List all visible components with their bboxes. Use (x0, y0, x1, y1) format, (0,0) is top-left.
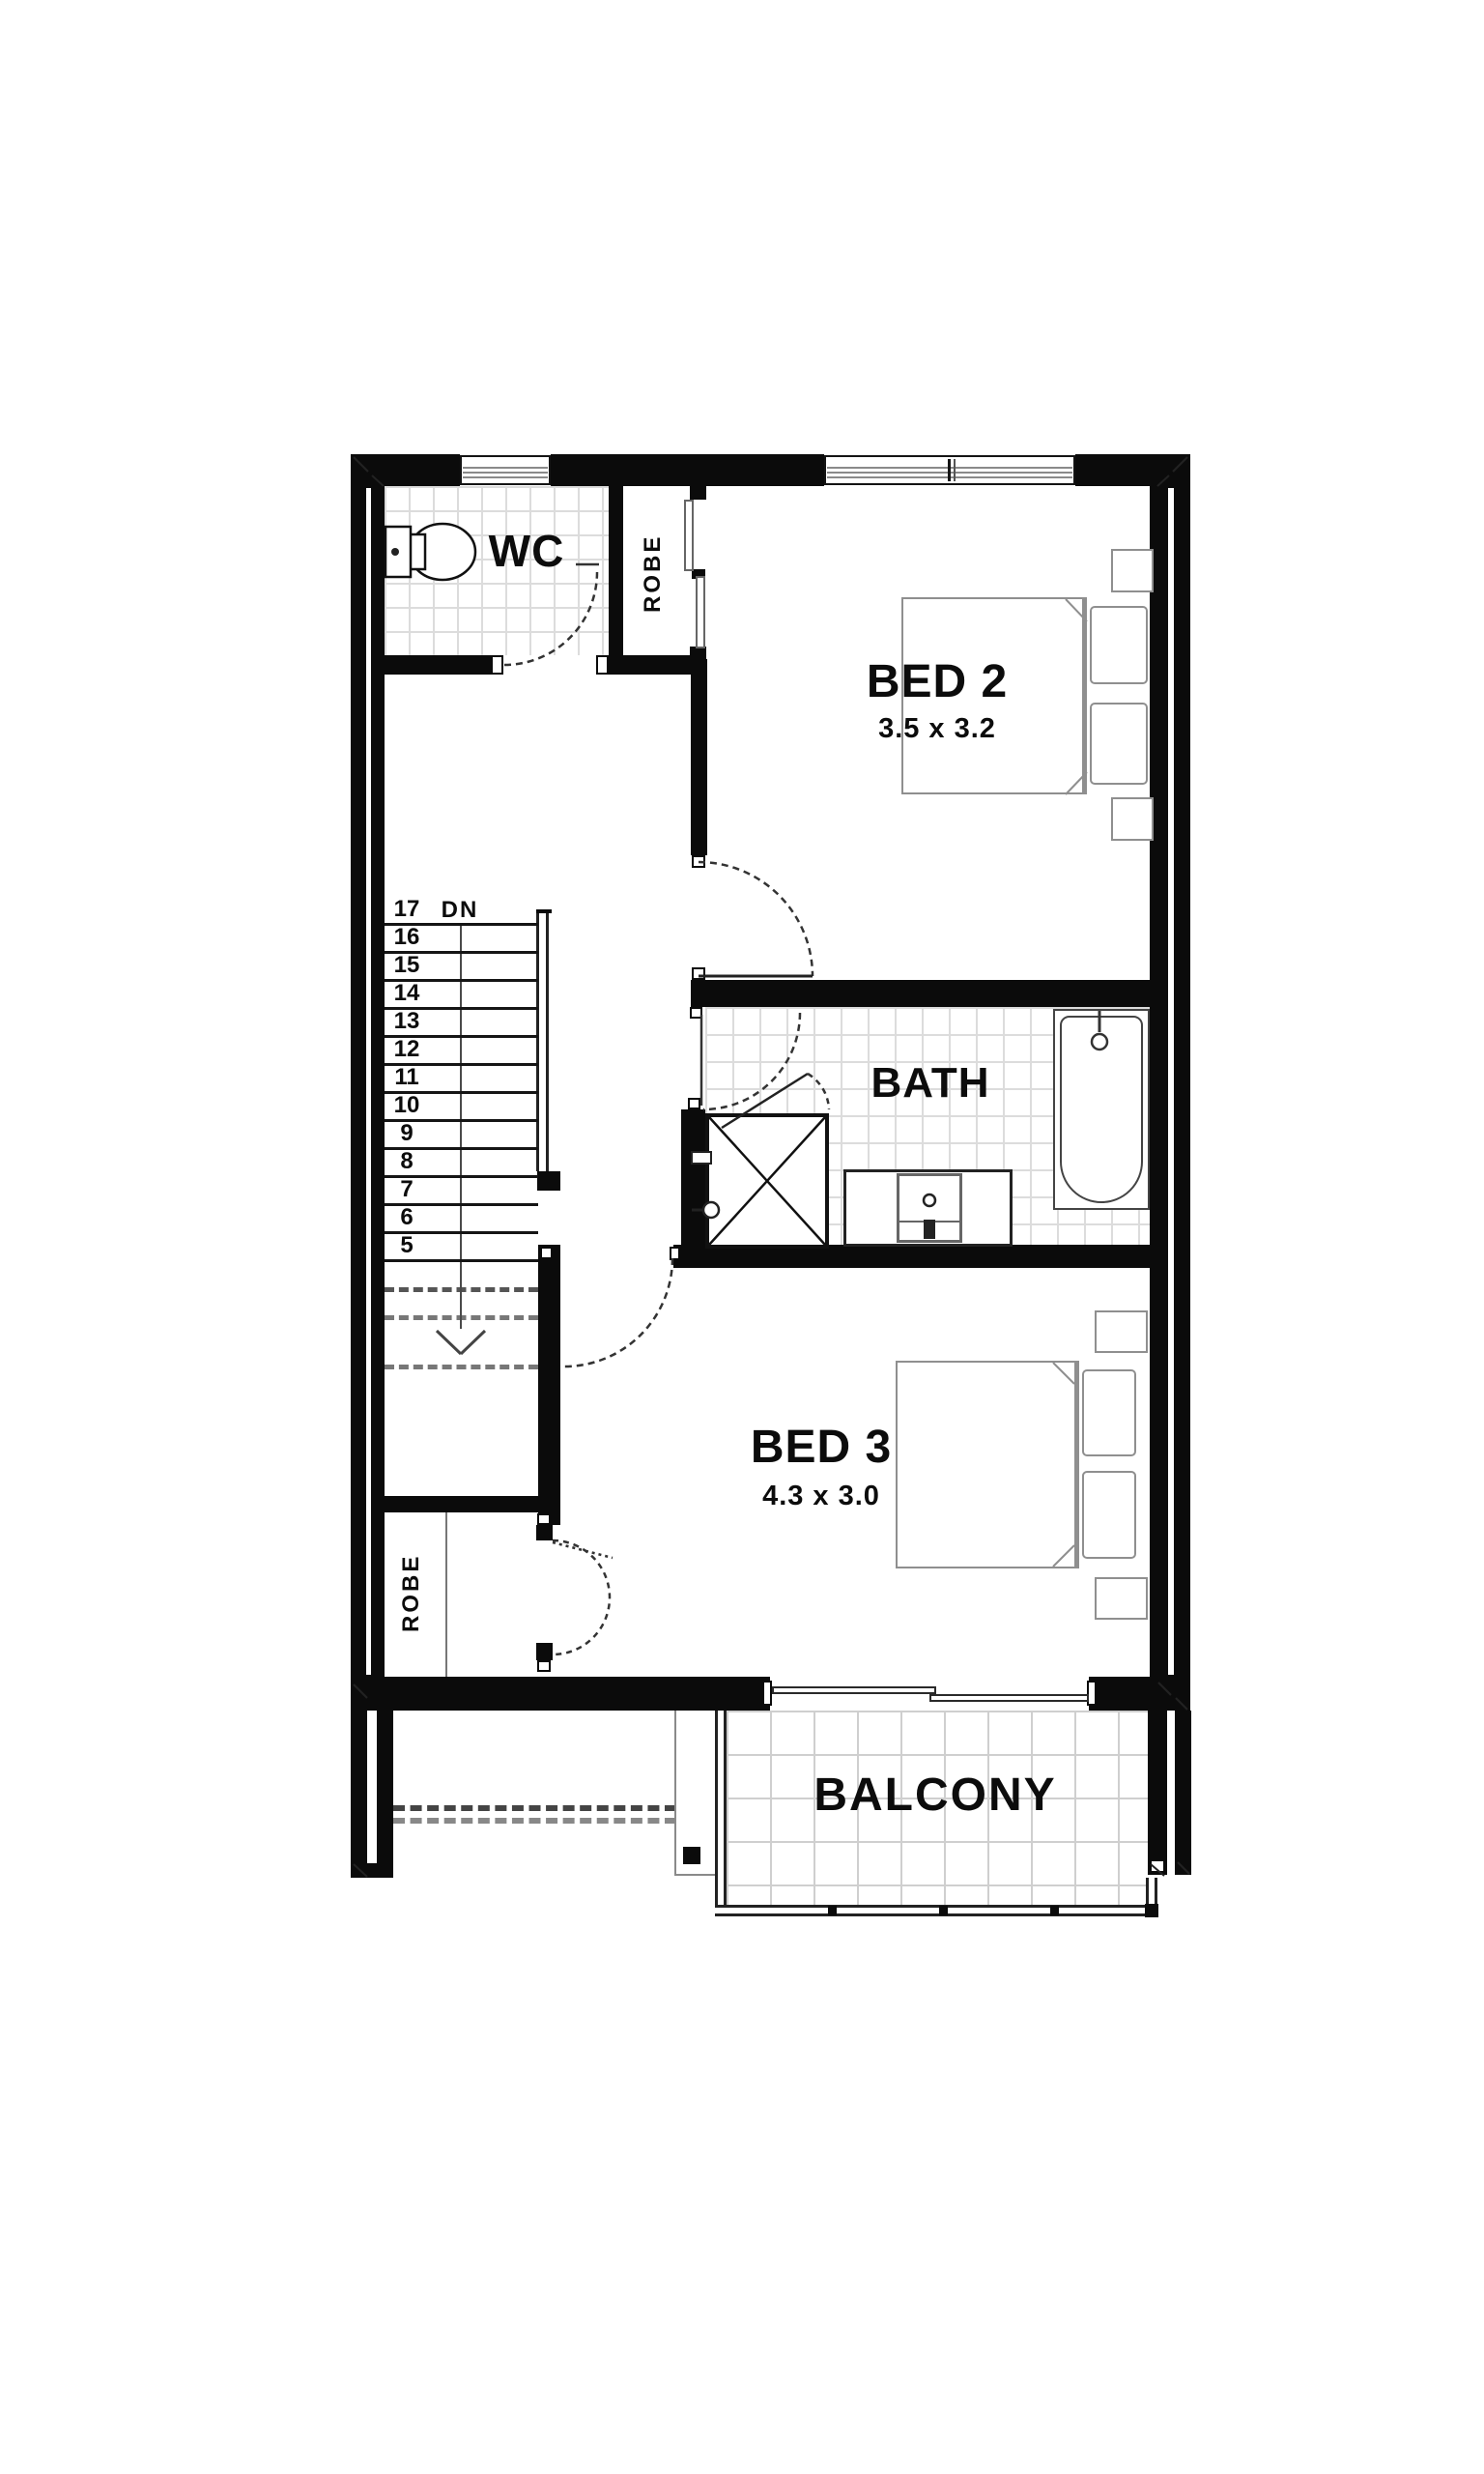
robe-upper-slider-cap-bottom (690, 647, 706, 660)
stair-number-10: 10 (385, 1091, 429, 1119)
stair-number-7: 7 (385, 1175, 429, 1203)
stair-handrail-top-tick (536, 909, 552, 913)
room-label-wc: WC (478, 525, 575, 577)
balcony-sliding-panel-2 (929, 1694, 1089, 1702)
bed3-pillow-1 (1082, 1369, 1136, 1456)
bed3-pillow-2 (1082, 1471, 1136, 1559)
pier-right-footing-cap (1150, 1859, 1165, 1873)
wall-robe-lower-top (385, 1496, 538, 1512)
balcony-rail-right-stub (1146, 1878, 1157, 1907)
robe-upper-slider-cap-top (690, 486, 706, 500)
wall-bath-north (691, 980, 1150, 1007)
bed2-headboard (1082, 599, 1085, 792)
roof-below-line-1 (393, 1805, 676, 1811)
bed3-door-arc (564, 1258, 672, 1366)
robe-lower-door-post-bottom (536, 1643, 553, 1660)
robe-upper-slider-panel-2 (696, 576, 705, 648)
balcony-post (683, 1847, 700, 1864)
bath-door-jamb-top (690, 1007, 702, 1019)
bed2-pillow-2 (1090, 703, 1148, 785)
bed3-door-jamb-right (670, 1247, 680, 1260)
room-dims-bed3: 4.3 x 3.0 (725, 1481, 918, 1512)
robe-lower-jamb-top (537, 1513, 551, 1525)
pier-right-inner (1148, 1711, 1167, 1875)
stair-number-8: 8 (385, 1147, 429, 1175)
bed2-side-table-bottom (1111, 797, 1154, 841)
stair-number-16: 16 (385, 923, 429, 951)
vanity-sink (897, 1173, 962, 1243)
floor-plan-canvas: DN WC ROBE BED 2 3.5 x 3.2 BATH (0, 0, 1484, 2474)
balcony-rail-bottom (715, 1905, 1157, 1916)
pier-left-footing (351, 1863, 393, 1878)
lower-roof-edge-horizontal (674, 1874, 719, 1876)
wall-left-cavity-seam (366, 488, 371, 1675)
robe-upper-slider-panel-1 (684, 500, 694, 571)
lower-roof-edge-vertical (674, 1711, 676, 1876)
room-label-robe-lower: ROBE (398, 1544, 429, 1641)
bed2-door-jamb-top (692, 855, 705, 868)
stair-direction-line (460, 923, 462, 1329)
stair-dashed-tread-3 (385, 1365, 538, 1369)
bed2-door-jamb-bottom (692, 967, 705, 980)
wall-bottom-right (1089, 1677, 1150, 1711)
balcony-sliding-panel-1 (772, 1686, 936, 1694)
robe-lower-jamb-bottom (537, 1660, 551, 1672)
balcony-door-jamb-left (762, 1681, 772, 1706)
room-label-balcony: BALCONY (790, 1769, 1080, 1822)
stair-number-13: 13 (385, 1007, 429, 1035)
bed2-door-arc (699, 862, 813, 976)
stair-number-11: 11 (385, 1063, 429, 1091)
bath-door-jamb-bottom (688, 1098, 700, 1109)
bed3-side-table-bottom (1095, 1577, 1148, 1620)
balcony-rail-left (715, 1711, 727, 1916)
wall-wc-robe-divider (609, 486, 623, 655)
wc-door-jamb-right (596, 655, 609, 675)
bed3-side-table-top (1095, 1310, 1148, 1353)
stair-number-9: 9 (385, 1119, 429, 1147)
robe-lower-door-arc (553, 1540, 610, 1654)
room-label-robe-upper: ROBE (640, 525, 671, 621)
bed3-headboard (1074, 1363, 1077, 1567)
balcony-rail-corner-post (1145, 1904, 1158, 1917)
stair-number-17: 17 (385, 896, 429, 923)
room-dims-bed2: 3.5 x 3.2 (841, 713, 1034, 745)
wall-right-cavity-seam (1168, 488, 1174, 1675)
wc-window (460, 455, 551, 485)
stair-tread-line (385, 1259, 538, 1262)
wall-bath-west (681, 1109, 705, 1247)
stair-number-15: 15 (385, 951, 429, 979)
room-label-bed2: BED 2 (841, 655, 1034, 708)
stair-newel-post (537, 1171, 560, 1191)
shower (705, 1113, 829, 1249)
wall-robe-upper-bottom (609, 655, 691, 675)
stair-number-6: 6 (385, 1203, 429, 1231)
room-label-bath: BATH (834, 1059, 1027, 1108)
bed3-door-jamb-left (540, 1247, 553, 1259)
room-label-bed3: BED 3 (725, 1421, 918, 1474)
balcony-rail-post-3 (1050, 1906, 1059, 1915)
stairs-down-label: DN (433, 897, 487, 924)
bed3-mattress (896, 1361, 1079, 1568)
stair-down-arrow (437, 1331, 485, 1354)
wc-door-jamb-left (491, 655, 503, 675)
pier-left-inner (377, 1711, 393, 1863)
wall-bed2-west (691, 659, 707, 855)
bathtub-inner (1060, 1016, 1143, 1203)
stair-number-5: 5 (385, 1231, 429, 1259)
wall-top-middle (551, 454, 824, 486)
bed2-side-table-top (1111, 549, 1154, 592)
robe-lower-divider (445, 1512, 447, 1677)
pier-right-outer (1175, 1711, 1191, 1875)
wall-wc-bottom (385, 655, 495, 675)
wall-bottom-left (351, 1677, 770, 1711)
robe-lower-door-leaf (553, 1542, 613, 1558)
stair-number-12: 12 (385, 1035, 429, 1063)
balcony-rail-post-2 (939, 1906, 948, 1915)
bed2-window (824, 455, 1075, 485)
roof-below-line-2 (393, 1818, 676, 1824)
bed2-pillow-1 (1090, 606, 1148, 684)
stair-number-14: 14 (385, 979, 429, 1007)
balcony-rail-post-1 (828, 1906, 837, 1915)
robe-lower-door-post-top (536, 1525, 553, 1540)
wall-stair-east (538, 1245, 560, 1525)
pier-left-outer (351, 1711, 367, 1863)
bed2-window-mullion (948, 459, 951, 481)
balcony-door-jamb-right (1087, 1681, 1097, 1706)
